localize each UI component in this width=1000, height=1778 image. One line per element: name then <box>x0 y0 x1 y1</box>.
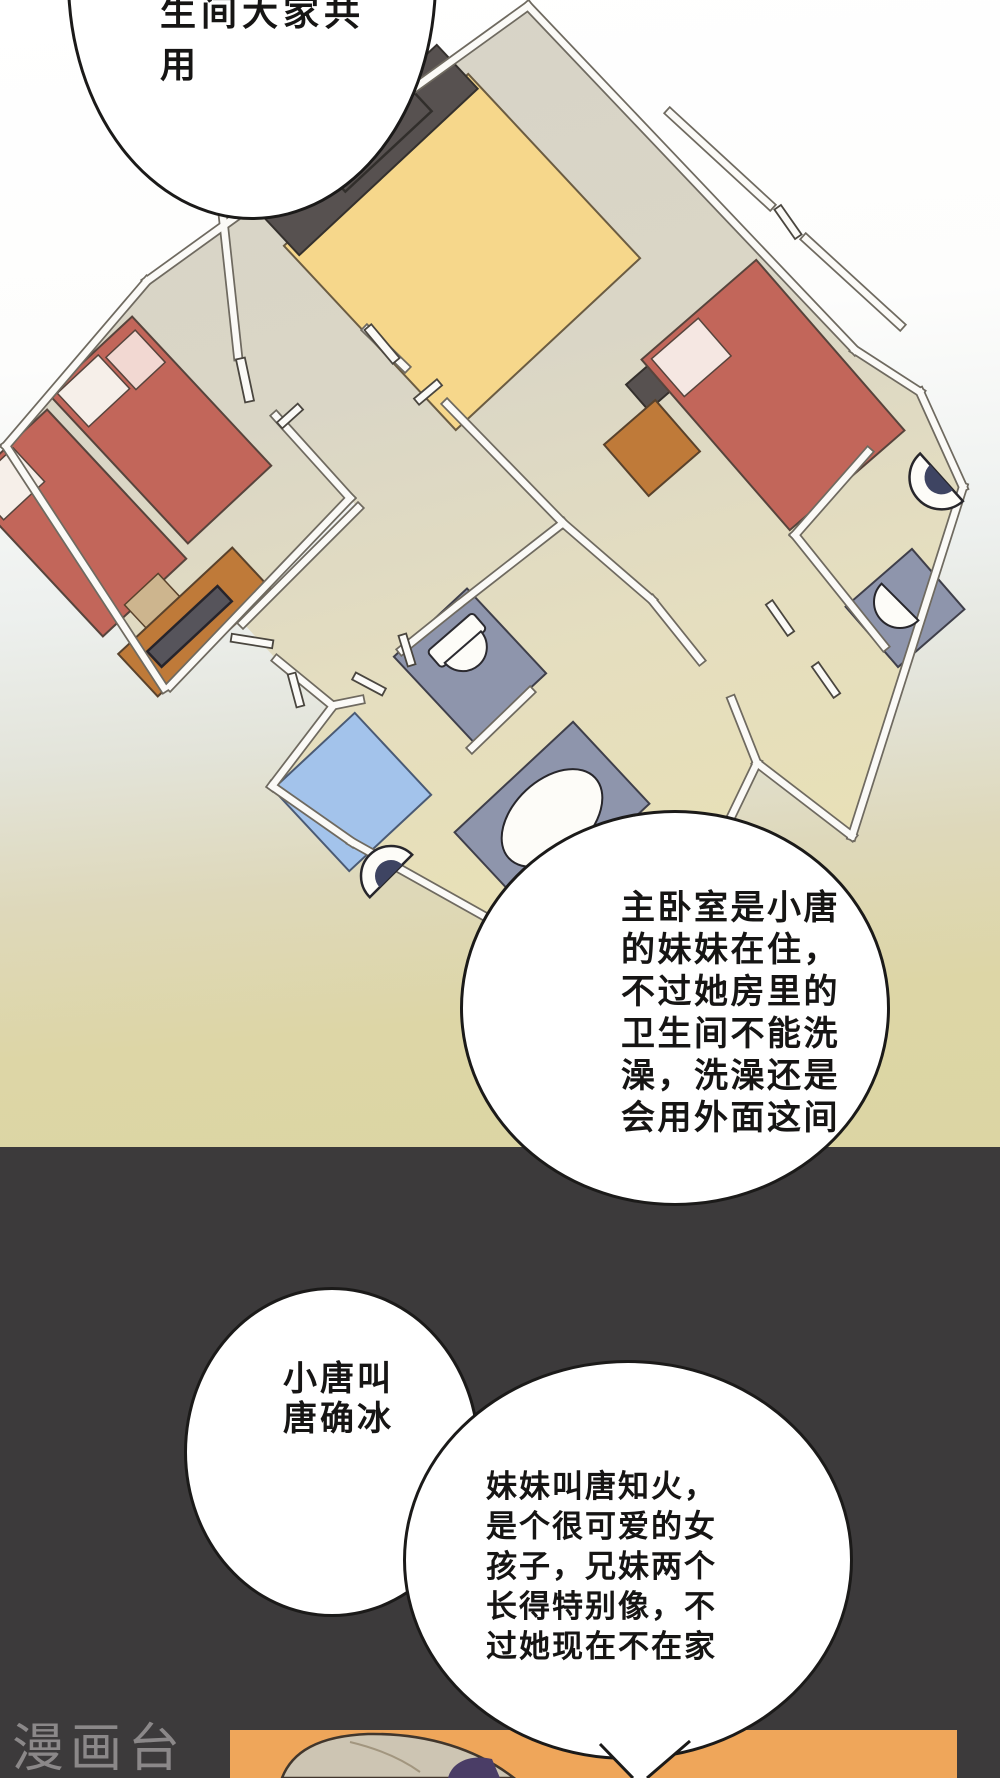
bubble-text: 妹妹叫唐知火， 是个很可爱的女 孩子，兄妹两个 长得特别像，不 过她现在不在家 <box>486 1467 717 1667</box>
watermark: 漫画台 <box>12 1706 186 1778</box>
comic-page: 主卧室是小唐 的妹妹在住， 不过她房里的 卫生间不能洗 澡，洗澡还是 会用外面这… <box>0 0 1000 1778</box>
bubble-master-bedroom: 主卧室是小唐 的妹妹在住， 不过她房里的 卫生间不能洗 澡，洗澡还是 会用外面这… <box>460 810 890 1206</box>
bubble-text: 小唐叫 唐确冰 <box>283 1359 394 1439</box>
bubble-sister-intro: 妹妹叫唐知火， 是个很可爱的女 孩子，兄妹两个 长得特别像，不 过她现在不在家 <box>403 1360 853 1760</box>
bubble-text: 主卧室是小唐 的妹妹在住， 不过她房里的 卫生间不能洗 澡，洗澡还是 会用外面这… <box>621 887 840 1139</box>
bubble-tail <box>585 1735 705 1778</box>
bubble-text: 生间大家共 用 <box>160 0 365 91</box>
